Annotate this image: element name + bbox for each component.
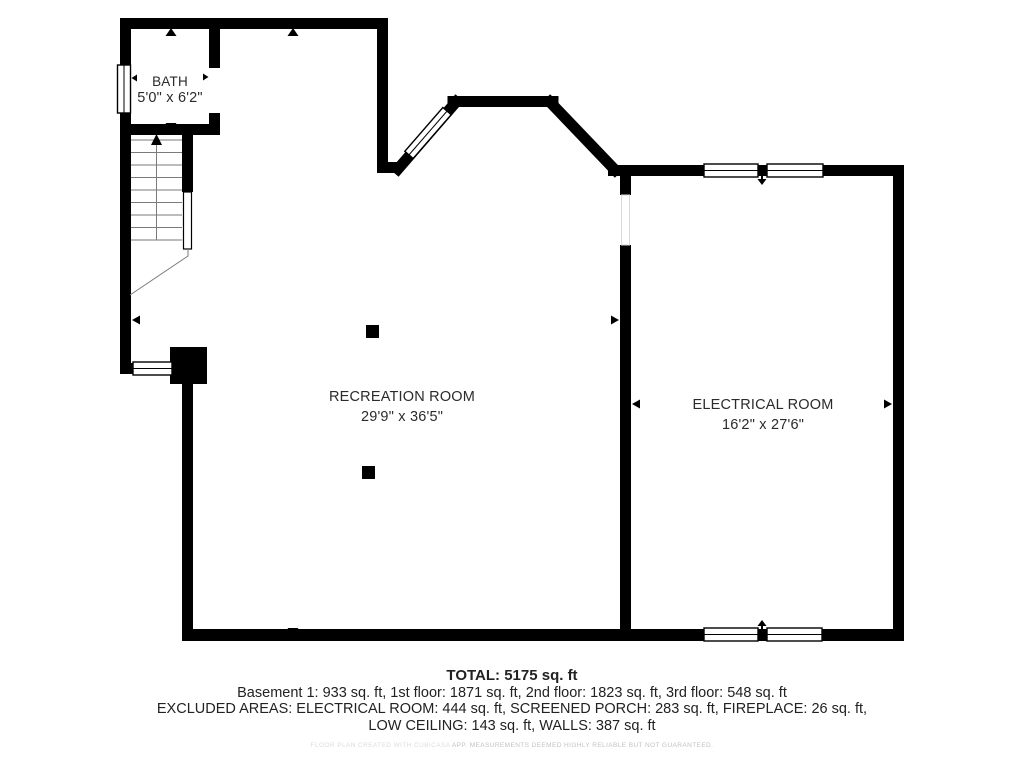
bay-window [405,108,451,159]
wall-left-lower [182,384,193,640]
electrical-bottom-window-1 [704,628,758,641]
wall-left-mid [120,113,131,363]
excluded-areas-line1: EXCLUDED AREAS: ELECTRICAL ROOM: 444 sq.… [0,701,1024,718]
wall-top [120,18,388,29]
arrow-left-icon [632,400,640,409]
floor-areas: Basement 1: 933 sq. ft, 1st floor: 1871 … [0,685,1024,702]
arrow-left-icon [132,316,140,325]
room-label-recreation: RECREATION ROOM 29'9" x 36'5" [302,387,502,427]
excluded-areas-line2: LOW CEILING: 143 sq. ft, WALLS: 387 sq. … [0,718,1024,735]
arrow-right-icon [884,400,892,409]
door-opening-electrical [622,195,630,245]
room-label-bath: BATH 5'0" x 6'2" [108,73,232,107]
total-area: TOTAL: 5175 sq. ft [0,668,1024,685]
arrow-up-icon [166,28,177,36]
post-icon [362,466,375,479]
walls [120,18,904,641]
wall-partition-lower [620,245,631,640]
left-bottom-window [133,362,172,375]
room-name: BATH [108,73,232,90]
wall-left-upper [120,18,131,66]
room-dimensions: 5'0" x 6'2" [108,90,232,107]
room-dimensions: 16'2" x 27'6" [663,415,863,435]
floorplan-page: BATH 5'0" x 6'2" RECREATION ROOM 29'9" x… [0,0,1024,768]
arrow-right-icon [611,316,619,325]
area-summary: TOTAL: 5175 sq. ft Basement 1: 933 sq. f… [0,668,1024,734]
room-name: RECREATION ROOM [302,387,502,407]
electrical-top-window-2 [767,164,823,177]
disclaimer: FLOOR PLAN CREATED WITH CUBICASA APP. ME… [0,742,1024,749]
wall-east-upper [377,18,388,168]
wall-bath-right-upper [209,18,220,68]
stair-underside-line [130,249,188,295]
disclaimer-app: FLOOR PLAN CREATED WITH CUBICASA [311,742,450,749]
floorplan-drawing [0,0,1024,768]
room-label-electrical: ELECTRICAL ROOM 16'2" x 27'6" [663,395,863,435]
room-name: ELECTRICAL ROOM [663,395,863,415]
wall-right [893,165,904,641]
wall-diagonal-right [550,102,615,170]
measurement-markers [132,28,893,636]
wall-partition-upper [620,170,631,195]
room-dimensions: 29'9" x 36'5" [302,407,502,427]
stair-railing [184,192,192,249]
post-icon [366,325,379,338]
arrow-up-icon [288,28,299,36]
electrical-bottom-window-2 [767,628,822,641]
windows [118,65,824,641]
electrical-top-window-1 [704,164,758,177]
staircase [130,140,188,295]
disclaimer-text: APP. MEASUREMENTS DEEMED HIGHLY RELIABLE… [450,742,713,749]
fireplace-block [170,347,207,384]
wall-stairs-right [182,135,193,192]
